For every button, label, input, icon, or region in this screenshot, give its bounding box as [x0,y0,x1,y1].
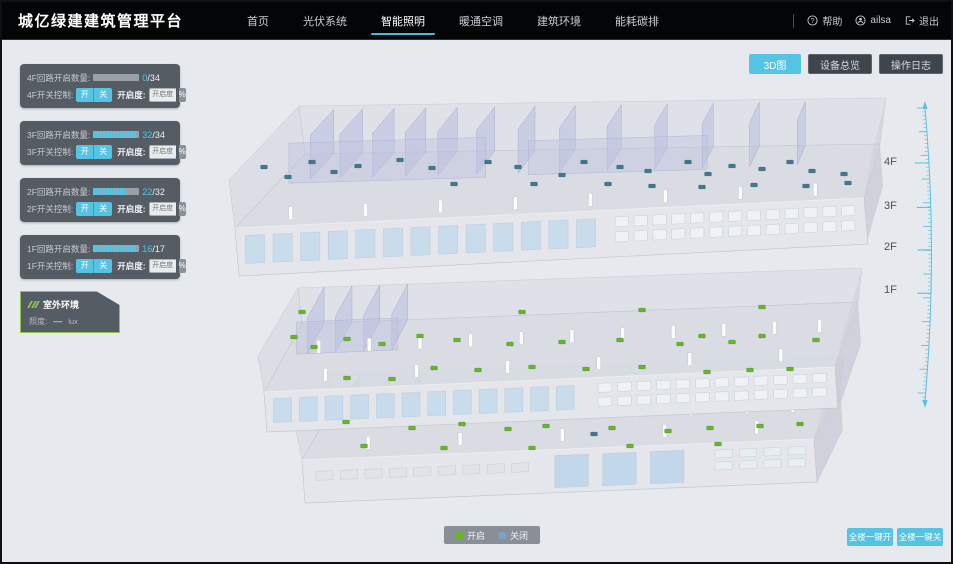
openness-input[interactable] [149,145,176,159]
illuminance-label: 照度: [29,316,47,327]
nav-item-energy-carbon[interactable]: 能耗碳排 [613,0,661,42]
switch-button-group: 开 关 [76,202,112,216]
legend-on-swatch [456,532,463,539]
openness-input[interactable] [149,259,176,273]
switch-control-label: 2F开关控制: [27,203,73,215]
whole-building-actions: 全楼一键开 全楼一键关 [847,528,943,546]
svg-text:?: ? [811,18,815,25]
nav-item-hvac[interactable]: 暖通空调 [457,0,505,42]
illuminance-unit: lux [68,317,78,326]
switch-button-group: 开 关 [76,145,112,159]
light-status-legend: 开启 关闭 [444,526,540,544]
switch-control-label: 1F开关控制: [27,260,73,272]
user-circle-icon [855,15,866,26]
operation-log-button[interactable]: 操作日志 [879,54,943,74]
circuit-count-value: 0/34 [142,73,160,83]
logout-link[interactable]: 退出 [904,13,939,28]
nav-item-smart-lighting[interactable]: 智能照明 [379,0,427,42]
user-link[interactable]: ailsa [855,15,891,26]
floor-control-panels: 4F回路开启数量: 0/34 4F开关控制: 开 关 开启度: % 3F回路开启… [20,64,180,333]
openness-label: 开启度: [117,203,145,215]
switch-off-button[interactable]: 关 [94,88,112,102]
switch-on-button[interactable]: 开 [76,202,94,216]
switch-button-group: 开 关 [76,88,112,102]
circuit-progress-fill [93,131,136,138]
circuit-progress-bar [93,245,139,252]
legend-on-item: 开启 [456,529,485,542]
help-label: 帮助 [822,13,842,28]
floor-scale-label-1f: 1F [884,284,910,296]
circuit-progress-bar [93,74,139,81]
device-overview-button[interactable]: 设备总览 [808,54,872,74]
openness-label: 开启度: [117,260,145,272]
circuit-progress-bar [93,188,139,195]
legend-off-swatch [499,532,506,539]
logout-icon [904,15,915,26]
openness-label: 开启度: [117,89,145,101]
username-label: ailsa [870,15,891,26]
circuit-count-label: 3F回路开启数量: [27,129,90,141]
floor-scale-label-3f: 3F [884,200,910,212]
nav-item-building-env[interactable]: 建筑环境 [535,0,583,42]
circuit-count-value: 16/17 [142,244,165,254]
illuminance-value: — [53,316,62,326]
switch-off-button[interactable]: 关 [94,202,112,216]
view-switch: 3D图 设备总览 操作日志 [749,54,943,74]
switch-off-button[interactable]: 关 [94,259,112,273]
slashes-icon [29,301,38,308]
legend-off-item: 关闭 [499,529,528,542]
switch-on-button[interactable]: 开 [76,145,94,159]
percent-suffix: % [179,88,186,102]
circuit-progress-fill [93,245,136,252]
view-3d-button[interactable]: 3D图 [749,54,801,74]
floor-panel-2f: 2F回路开启数量: 22/32 2F开关控制: 开 关 开启度: % [20,178,180,222]
help-circle-icon: ? [807,15,818,26]
floor-scale-label-2f: 2F [884,241,910,253]
circuit-progress-bar [93,131,139,138]
percent-suffix: % [179,259,186,273]
openness-input[interactable] [149,88,176,102]
help-link[interactable]: ? 帮助 [807,13,842,28]
switch-off-button[interactable]: 关 [94,145,112,159]
nav-divider [793,14,794,28]
app-window: 城亿绿建建筑管理平台 首页 光伏系统 智能照明 暖通空调 建筑环境 能耗碳排 ?… [0,0,953,564]
circuit-count-value: 22/32 [142,187,165,197]
outdoor-env-panel: 室外环境 照度: — lux [20,291,120,333]
switch-control-label: 4F开关控制: [27,89,73,101]
all-off-button[interactable]: 全楼一键关 [897,528,943,546]
circuit-count-label: 4F回路开启数量: [27,72,90,84]
logout-label: 退出 [919,13,939,28]
circuit-progress-fill [93,188,125,195]
percent-suffix: % [179,202,186,216]
floor-panel-1f: 1F回路开启数量: 16/17 1F开关控制: 开 关 开启度: % [20,235,180,279]
nav-item-home[interactable]: 首页 [245,0,271,42]
circuit-count-label: 2F回路开启数量: [27,186,90,198]
openness-label: 开启度: [117,146,145,158]
floor-scale-label-4f: 4F [884,156,910,168]
switch-button-group: 开 关 [76,259,112,273]
top-nav: 城亿绿建建筑管理平台 首页 光伏系统 智能照明 暖通空调 建筑环境 能耗碳排 ?… [2,2,951,40]
floor-panel-3f: 3F回路开启数量: 32/34 3F开关控制: 开 关 开启度: % [20,121,180,165]
floor-panel-4f: 4F回路开启数量: 0/34 4F开关控制: 开 关 开启度: % [20,64,180,108]
brand-title: 城亿绿建建筑管理平台 [18,10,183,31]
legend-on-label: 开启 [467,529,485,542]
switch-on-button[interactable]: 开 [76,259,94,273]
switch-on-button[interactable]: 开 [76,88,94,102]
nav-item-pv-system[interactable]: 光伏系统 [301,0,349,42]
switch-control-label: 3F开关控制: [27,146,73,158]
legend-off-label: 关闭 [510,529,528,542]
main-menu: 首页 光伏系统 智能照明 暖通空调 建筑环境 能耗碳排 [245,0,661,42]
openness-input[interactable] [149,202,176,216]
all-on-button[interactable]: 全楼一键开 [847,528,893,546]
outdoor-env-title: 室外环境 [43,298,79,311]
circuit-count-label: 1F回路开启数量: [27,243,90,255]
nav-user-area: ? 帮助 ailsa 退出 [793,13,939,28]
circuit-count-value: 32/34 [142,130,165,140]
percent-suffix: % [179,145,186,159]
